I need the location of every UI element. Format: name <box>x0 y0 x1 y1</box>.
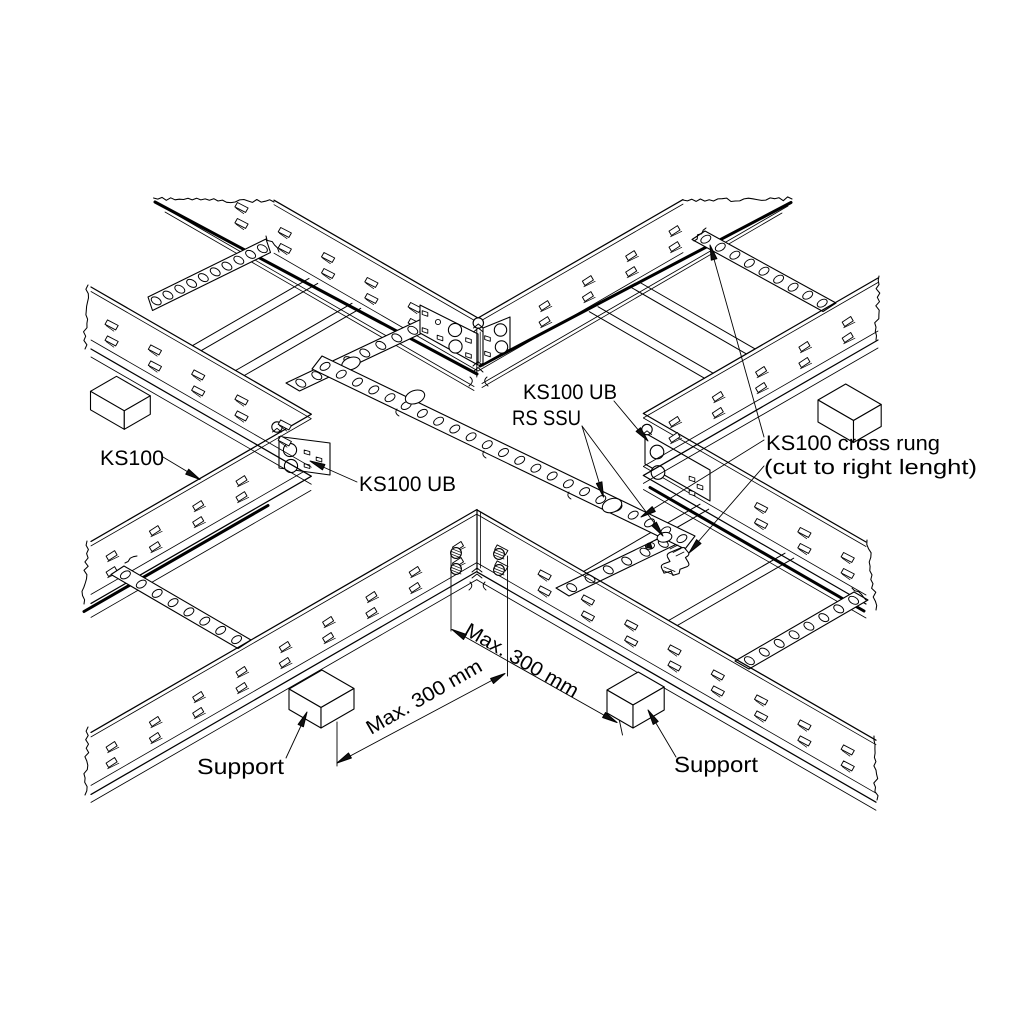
svg-text:RS SSU: RS SSU <box>512 407 581 430</box>
svg-text:Support: Support <box>674 752 758 777</box>
svg-text:KS100 UB: KS100 UB <box>523 381 617 404</box>
svg-text:(cut to right lenght): (cut to right lenght) <box>764 456 977 479</box>
svg-text:Support: Support <box>197 754 284 779</box>
svg-text:KS100 cross rung: KS100 cross rung <box>766 432 940 455</box>
svg-text:KS100 UB: KS100 UB <box>359 473 456 496</box>
svg-text:KS100: KS100 <box>100 447 164 470</box>
